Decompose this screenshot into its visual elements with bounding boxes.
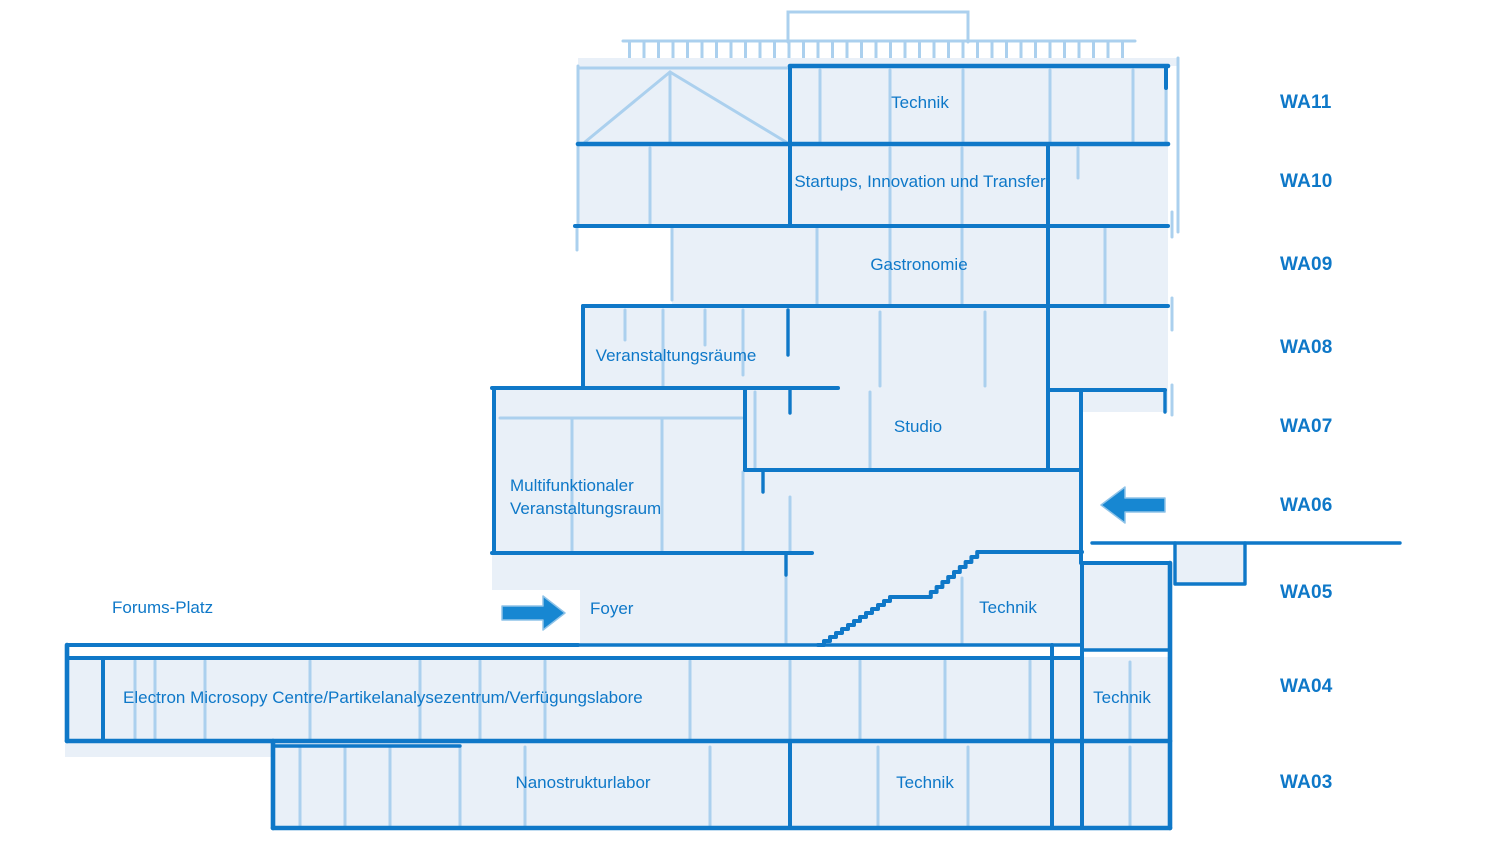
room-label-wa06-line2: Veranstaltungsraum	[510, 497, 661, 520]
room-label-wa06-multifunktional: Multifunktionaler Veranstaltungsraum	[510, 474, 661, 520]
floor-code-wa05: WA05	[1280, 582, 1333, 604]
section-drawing	[0, 0, 1500, 842]
room-label-wa07-studio: Studio	[894, 417, 942, 437]
floor-code-wa09: WA09	[1280, 254, 1333, 276]
room-label-wa04-technik: Technik	[1093, 688, 1151, 708]
room-label-wa03-technik: Technik	[896, 773, 954, 793]
floor-code-wa10: WA10	[1280, 171, 1333, 193]
room-label-wa10-startups: Startups, Innovation und Transfer	[794, 172, 1045, 192]
room-label-wa08-veranstaltungsraeume: Veranstaltungsräume	[596, 346, 757, 366]
floor-code-wa03: WA03	[1280, 772, 1333, 794]
room-label-wa03-nanostrukturlabor: Nanostrukturlabor	[515, 773, 650, 793]
arrow-left-icon	[1101, 487, 1165, 523]
floor-code-wa08: WA08	[1280, 337, 1333, 359]
room-label-wa11-technik: Technik	[891, 93, 949, 113]
label-forums-platz: Forums-Platz	[112, 598, 213, 618]
room-label-foyer: Foyer	[590, 599, 633, 619]
floor-code-wa07: WA07	[1280, 416, 1333, 438]
floor-code-wa04: WA04	[1280, 676, 1333, 698]
room-fills	[65, 58, 1245, 828]
arrow-right-icon	[502, 596, 565, 630]
room-label-wa05-technik: Technik	[979, 598, 1037, 618]
floor-code-wa11: WA11	[1280, 92, 1332, 114]
building-section-diagram: Technik Startups, Innovation und Transfe…	[0, 0, 1500, 842]
room-label-wa06-line1: Multifunktionaler	[510, 474, 661, 497]
room-label-wa09-gastronomie: Gastronomie	[870, 255, 967, 275]
floor-code-wa06: WA06	[1280, 495, 1333, 517]
room-label-wa04-labs: Electron Microsopy Centre/Partikelanalys…	[123, 688, 643, 708]
roof-railing	[575, 12, 1178, 60]
